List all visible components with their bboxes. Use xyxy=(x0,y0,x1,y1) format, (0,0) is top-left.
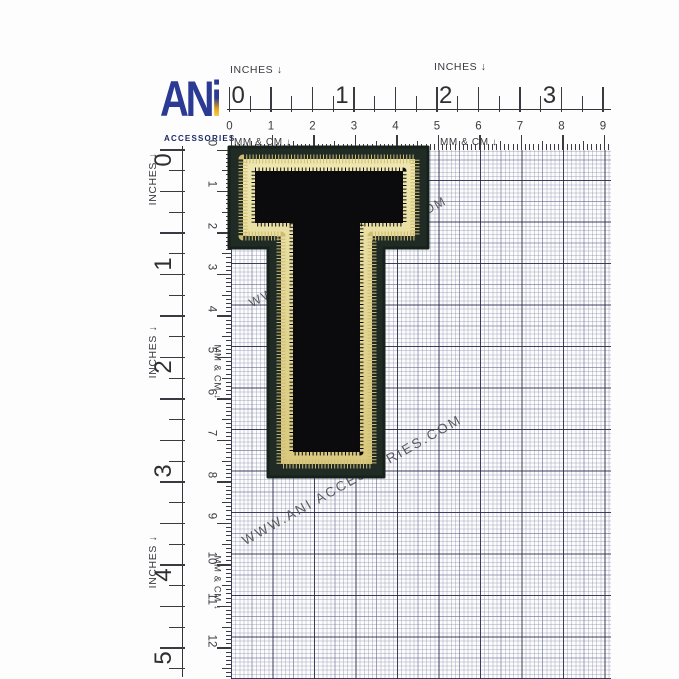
product-photo-canvas: ANi ACCESSORIES INCHES ↓ INCHES ↓ MM & C… xyxy=(0,0,679,679)
letter-t-patch xyxy=(0,0,679,679)
